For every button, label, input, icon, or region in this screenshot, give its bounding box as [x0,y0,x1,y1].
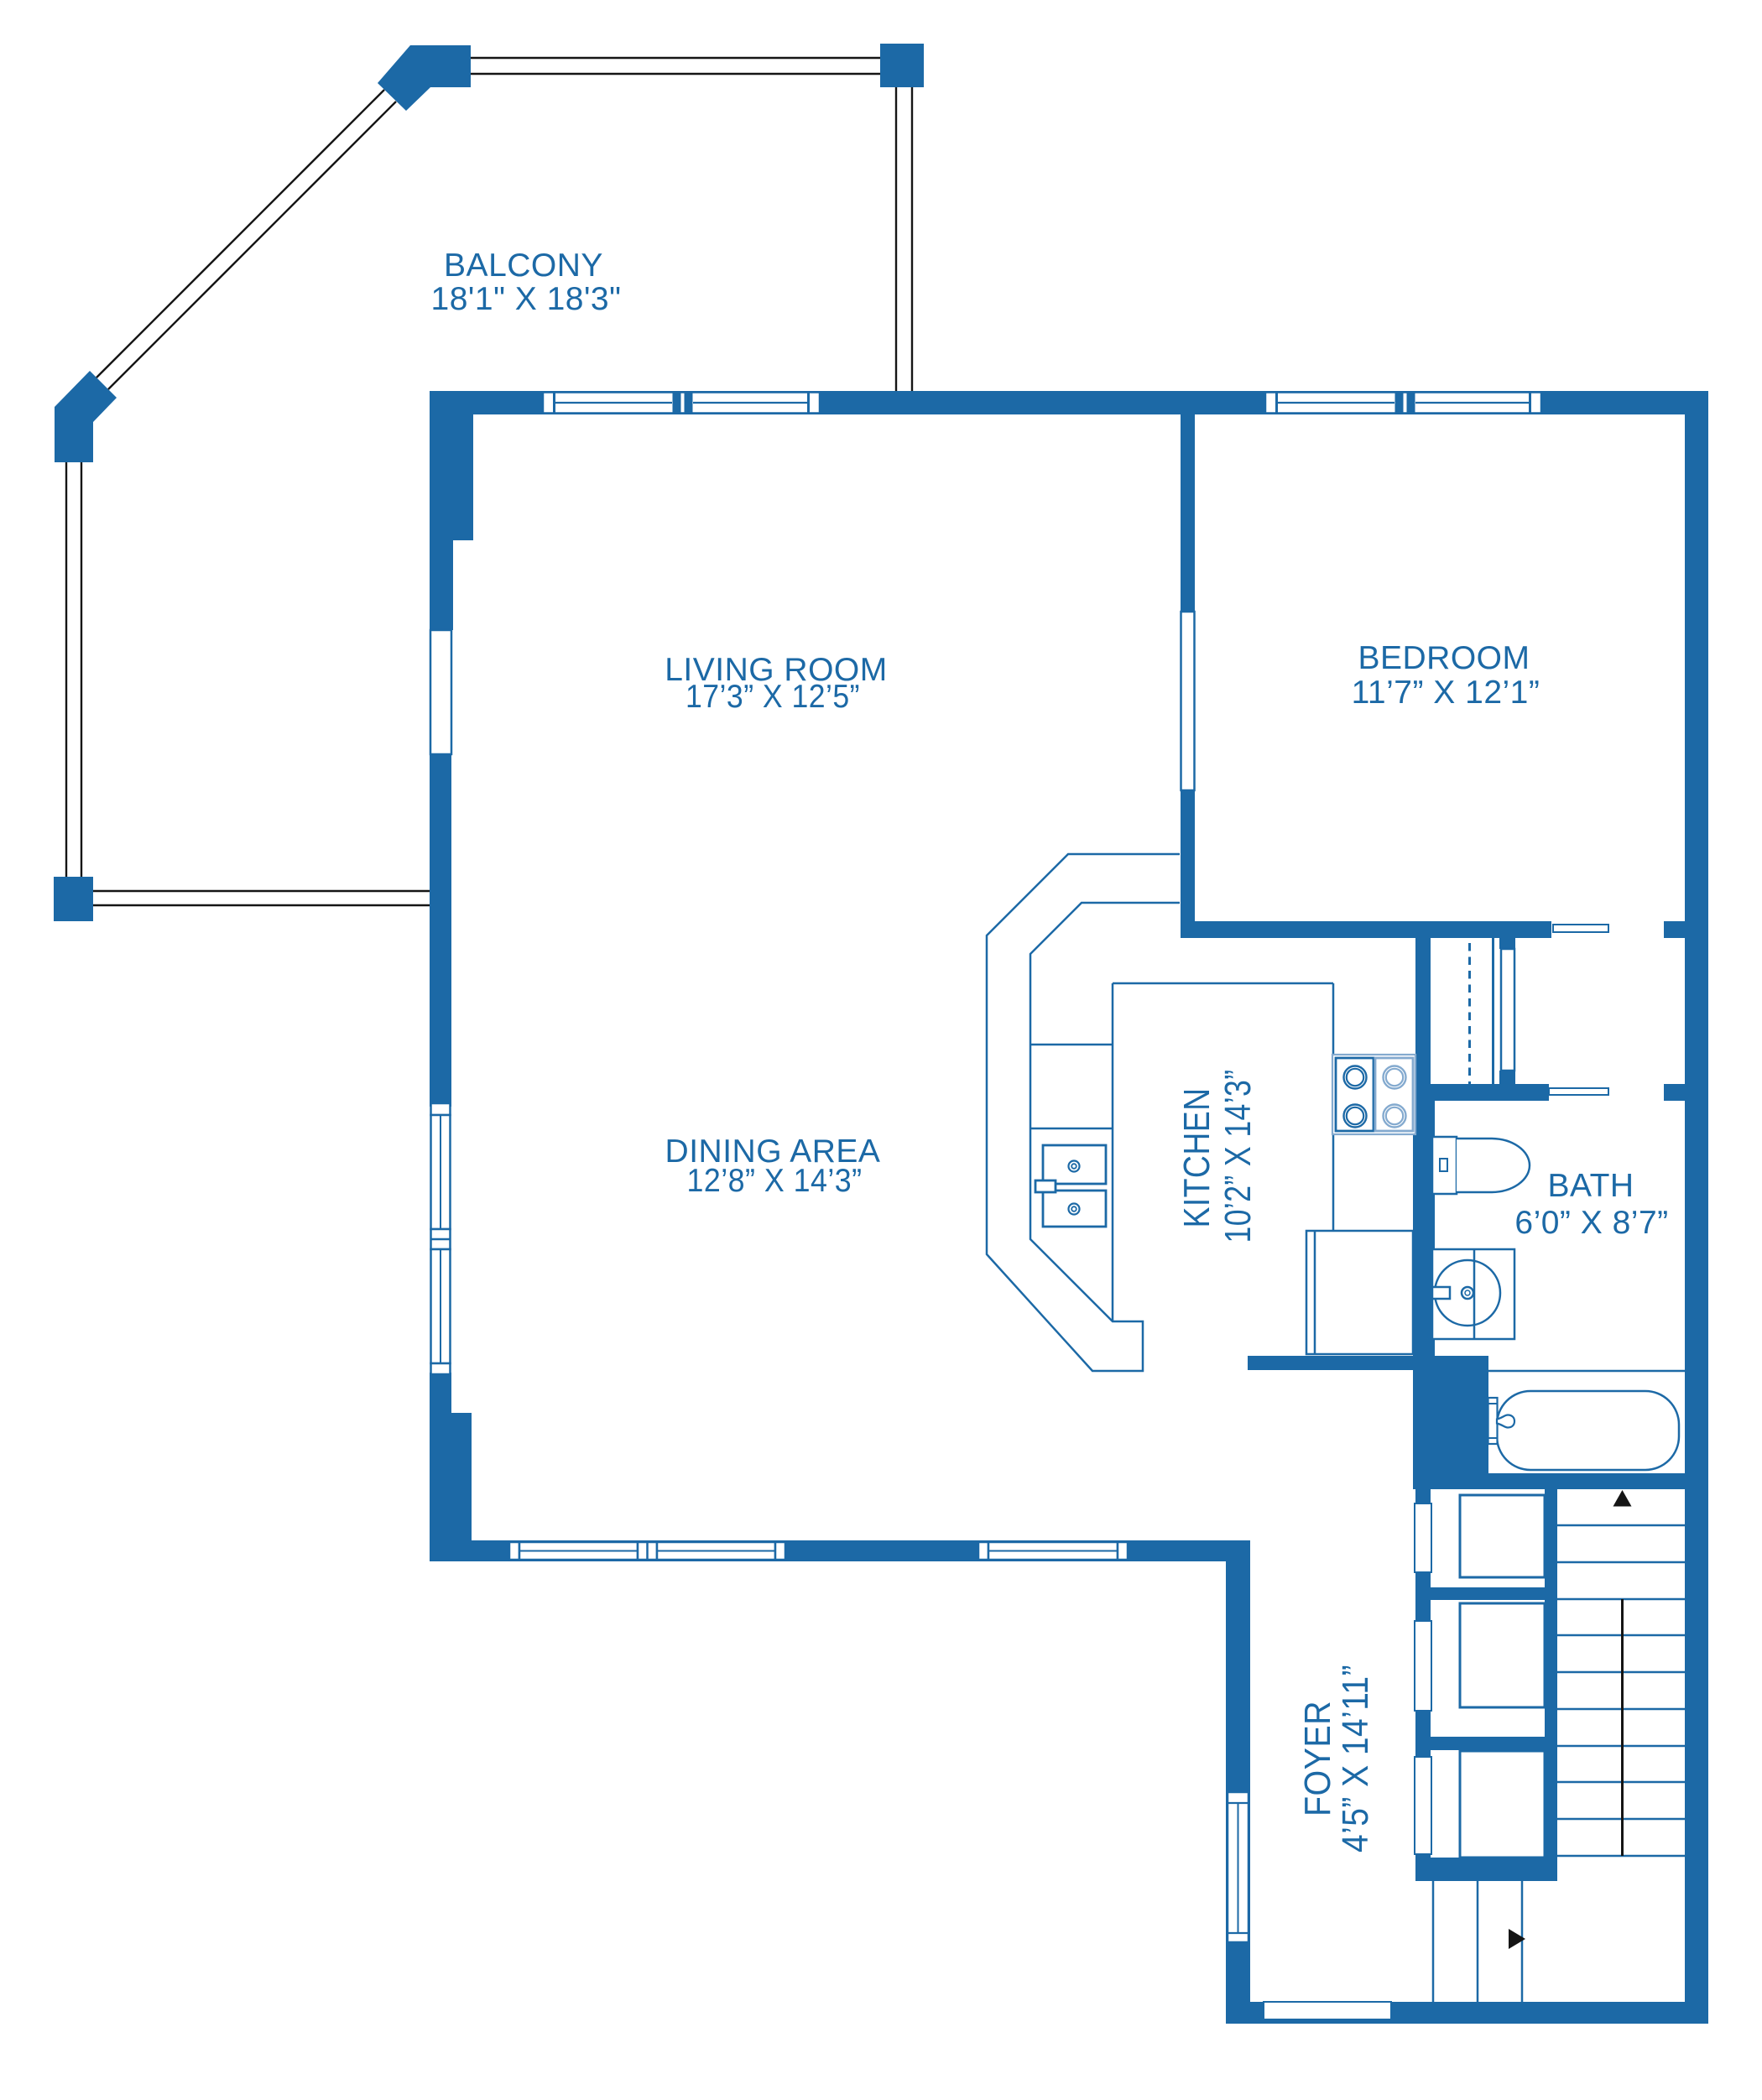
svg-text:4’5” X 14’11”: 4’5” X 14’11” [1335,1665,1376,1852]
svg-text:BEDROOM: BEDROOM [1358,640,1530,676]
svg-text:18'1" X 18'3": 18'1" X 18'3" [431,281,622,317]
svg-text:BALCONY: BALCONY [444,248,603,284]
svg-text:FOYER: FOYER [1297,1701,1338,1816]
svg-text:BATH: BATH [1547,1168,1634,1204]
svg-text:17’3” X 12’5”: 17’3” X 12’5” [686,679,860,715]
svg-text:11’7” X 12’1”: 11’7” X 12’1” [1352,675,1540,711]
svg-text:12’8” X 14’3”: 12’8” X 14’3” [687,1163,863,1199]
svg-text:10’2” X 14’3”: 10’2” X 14’3” [1217,1070,1259,1243]
svg-text:KITCHEN: KITCHEN [1176,1088,1217,1228]
svg-text:6’0” X 8’7”: 6’0” X 8’7” [1514,1205,1668,1241]
